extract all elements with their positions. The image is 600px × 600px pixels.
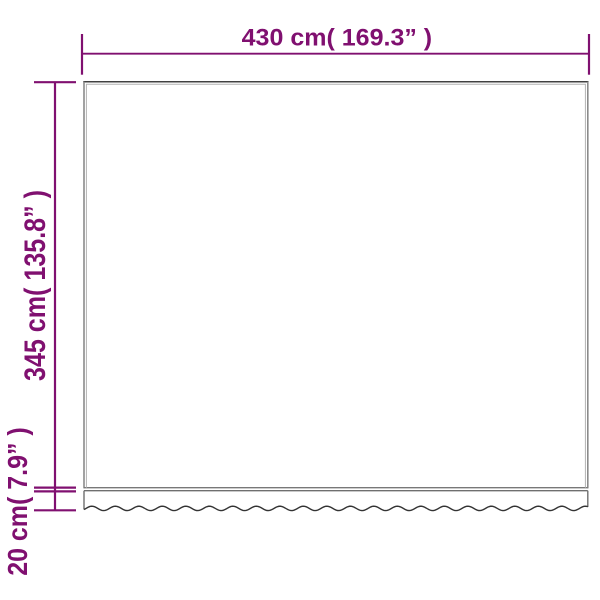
svg-text:430 cm( 169.3” ): 430 cm( 169.3” ) xyxy=(242,25,433,51)
svg-text:20 cm( 7.9” ): 20 cm( 7.9” ) xyxy=(2,427,33,576)
svg-text:345 cm( 135.8” ): 345 cm( 135.8” ) xyxy=(19,190,52,381)
